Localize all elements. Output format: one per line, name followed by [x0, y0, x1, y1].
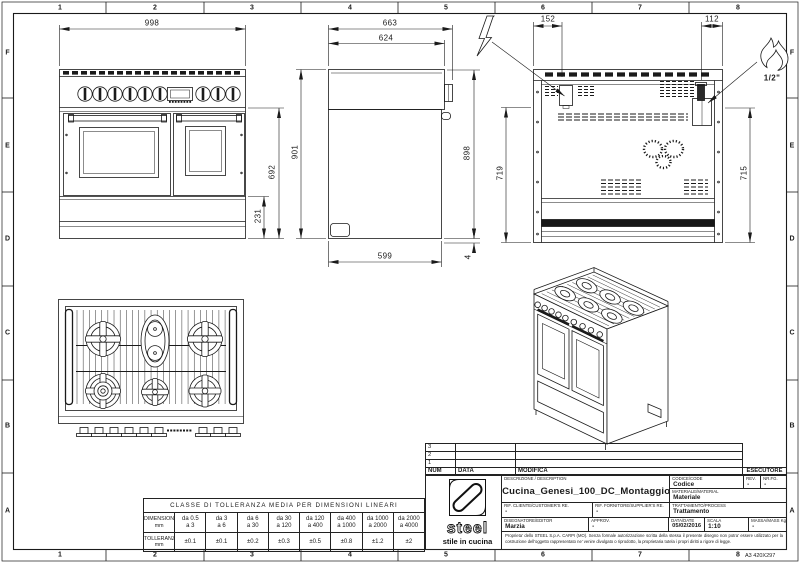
grid-row-label-left: F: [5, 50, 9, 57]
rev-cell: REV. -: [744, 476, 761, 488]
tolerance-value-cell: ±0.3: [268, 533, 299, 552]
grid-row-label-right: B: [789, 423, 794, 430]
logo-text: steel: [447, 520, 488, 537]
grid-col-label-bottom: 6: [541, 552, 545, 559]
revision-row: 1: [426, 460, 742, 468]
tolerance-row-label: DIMENSIONImm: [144, 513, 175, 533]
dim-back-left-offset-label: 152: [541, 15, 556, 24]
logo-tagline: stile in cucina: [443, 537, 493, 546]
tolerance-table-title: CLASSE DI TOLLERANZA MEDIA PER DIMENSION…: [144, 499, 425, 513]
codice-cell: CODICE/CODE Codice: [670, 476, 744, 488]
legal-text: Proprieta' dello STEEL S.p.A. CARPI (MO)…: [502, 532, 786, 545]
dim-front-height-label: 692: [268, 165, 277, 180]
sheet-format-note: A3 420X297: [745, 553, 775, 559]
tolerance-value-cell: ±0.5: [300, 533, 331, 552]
grid-col-label-bottom: 7: [638, 552, 642, 559]
grid-col-label-bottom: 1: [58, 552, 62, 559]
grid-col-label-bottom: 8: [736, 552, 740, 559]
dimension-lines: [60, 22, 756, 267]
grid-row-label-left: B: [5, 423, 10, 430]
grid-col-label-top: 4: [348, 4, 352, 11]
massa-cell: MASSA/MASS Kg -: [749, 518, 786, 531]
grid-col-label-top: 2: [153, 4, 157, 11]
grid-col-label-bottom: 4: [348, 552, 352, 559]
grid-row-label-left: E: [5, 143, 10, 150]
disegnatore-cell: DISEGNATORE/EDITOR Marzia: [502, 518, 589, 531]
dim-side-base-depth-label: 599: [378, 252, 393, 261]
description-cell: DESCRIZIONE / DESCRIPTION Cucina_Genesi_…: [502, 476, 670, 502]
dim-front-plinth-label: 231: [254, 209, 263, 224]
tolerance-row-label: TOLLERANZAmm: [144, 533, 175, 552]
lightning-leader: [492, 42, 565, 96]
dim-back-right-offset-label: 112: [705, 15, 719, 24]
back-vents: [537, 82, 720, 235]
gas-pipe: [698, 85, 705, 101]
approv-cell: APPROV. -: [589, 518, 669, 531]
dim-side-back-height-label: 898: [463, 146, 472, 161]
description-label: DESCRIZIONE / DESCRIPTION: [502, 476, 669, 482]
dim-side-height-label: 901: [291, 145, 300, 160]
revision-row: 3: [426, 444, 742, 452]
title-block: 3 2 1 NUM DATA MODIFICA ESECUTORE: [425, 443, 787, 550]
flame-icon: [761, 38, 788, 71]
dimension-range-cell: da 120a 400: [300, 513, 331, 533]
grid-row-label-right: E: [790, 143, 795, 150]
grid-col-label-top: 8: [736, 4, 740, 11]
date-cell: DATA/DATE 05/02/2016: [669, 518, 705, 531]
dimension-range-cell: da 6a 30: [237, 513, 268, 533]
grid-col-label-top: 5: [444, 4, 448, 11]
grid-col-label-top: 7: [638, 4, 642, 11]
grid-row-label-right: C: [789, 330, 794, 337]
rif-fornitore-cell: RIF. FORNITORE/SUPPLIER'S RE. -: [593, 503, 670, 517]
plan-view-drawing: [59, 300, 244, 437]
grid-row-label-left: D: [5, 236, 10, 243]
tolerance-value-cell: ±1.2: [362, 533, 393, 552]
dim-back-left-height-label: 719: [496, 166, 505, 181]
tolerance-value-cell: ±0.1: [175, 533, 206, 552]
isometric-view-drawing: [534, 268, 668, 451]
dim-front-width-label: 998: [145, 19, 160, 28]
dim-side-depth-label: 663: [383, 19, 398, 28]
rev-num: 2: [426, 452, 456, 459]
front-view-drawing: [60, 70, 246, 239]
rev-num: 3: [426, 444, 456, 451]
title-block-main: steel stile in cucina DESCRIZIONE / DESC…: [425, 475, 787, 550]
flame-leader: [708, 62, 757, 103]
perforated-logo-ornament: [644, 141, 683, 168]
rev-num: 1: [426, 460, 456, 467]
side-view-drawing: [329, 70, 453, 239]
grid-row-label-right: A: [789, 508, 794, 515]
revision-row: 2: [426, 452, 742, 460]
tolerance-table: CLASSE DI TOLLERANZA MEDIA PER DIMENSION…: [143, 498, 425, 552]
dim-back-right-height-label: 715: [740, 166, 749, 181]
electrical-connection-box: [560, 86, 573, 106]
tolerance-value-cell: ±0.8: [331, 533, 362, 552]
grid-col-label-top: 1: [58, 4, 62, 11]
grid-row-label-left: A: [5, 508, 10, 515]
dimension-range-cell: da 3a 6: [206, 513, 237, 533]
steel-logo: steel stile in cucina: [426, 476, 509, 550]
lightning-icon: [477, 16, 494, 56]
front-knobs: [78, 87, 240, 103]
gas-connection-size-label: 1/2": [764, 74, 781, 83]
plan-burners: [86, 315, 223, 409]
tolerance-value-cell: ±0.1: [206, 533, 237, 552]
fg-cell: NR.FG. -: [761, 476, 786, 488]
grid-row-label-right: D: [789, 236, 794, 243]
materiale-cell: MATERIALE/MATERIAL Materiale: [670, 489, 786, 502]
dim-side-gap-label: 4: [464, 255, 473, 260]
grid-col-label-top: 6: [541, 4, 545, 11]
esecutore-header: ESECUTORE: [742, 467, 787, 475]
grid-col-label-top: 3: [250, 4, 254, 11]
dim-side-top-depth-label: 624: [379, 34, 394, 43]
trattamento-cell: TRATTAMENTO/PROCESS Trattamento: [670, 503, 786, 517]
tolerance-value-cell: ±0.2: [237, 533, 268, 552]
front-display: [168, 88, 193, 101]
tolerance-value-cell: ±2: [393, 533, 424, 552]
grid-col-label-bottom: 2: [153, 552, 157, 559]
revision-table: 3 2 1 NUM DATA MODIFICA: [425, 443, 743, 475]
grid-row-label-left: C: [5, 330, 10, 337]
back-view-drawing: [534, 70, 723, 243]
grid-col-label-bottom: 3: [250, 552, 254, 559]
dimension-range-cell: da 0.5a 3: [175, 513, 206, 533]
plan-knobs: [77, 428, 241, 437]
scala-cell: SCALA 1:10: [705, 518, 749, 531]
dimension-range-cell: da 2000a 4000: [393, 513, 424, 533]
drawing-sheet: 998 692 231 663 624 901 898 599 4 152 11…: [0, 0, 800, 563]
description-value: Cucina_Genesi_100_DC_Montaggio: [502, 486, 669, 497]
rif-cliente-cell: RIF. CLIENTE/CUSTOMER'S RE. -: [502, 503, 593, 517]
grid-row-label-right: F: [790, 50, 794, 57]
grid-col-label-bottom: 5: [444, 552, 448, 559]
dimension-range-cell: da 30a 120: [268, 513, 299, 533]
dimension-range-cell: da 400a 1000: [331, 513, 362, 533]
dimension-range-cell: da 1000a 2000: [362, 513, 393, 533]
logo-cell: steel stile in cucina: [426, 476, 502, 549]
